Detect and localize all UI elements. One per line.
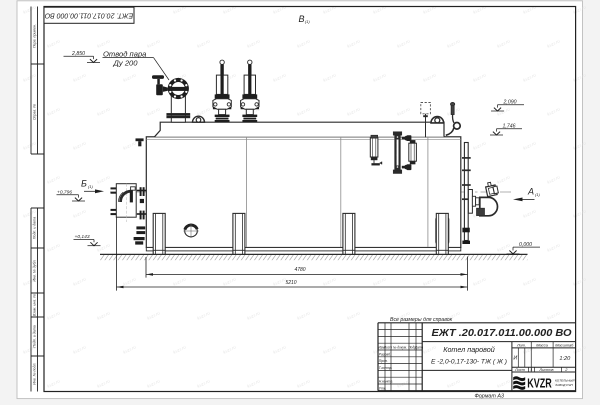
svg-text:(1): (1) [535,192,541,197]
svg-text:KVZR: KVZR [527,375,552,390]
svg-text:Ду 200: Ду 200 [113,58,139,67]
svg-text:5210: 5210 [285,280,296,286]
svg-text:Котел паровой: Котел паровой [443,345,495,354]
svg-text:И: И [513,356,517,362]
svg-text:В: В [299,14,305,24]
svg-text:Отвод пара: Отвод пара [103,49,146,58]
svg-text:Справ. №: Справ. № [33,104,37,120]
svg-text:Инв. № дубл.: Инв. № дубл. [33,259,37,281]
svg-text:Б: Б [81,179,87,189]
svg-text:Формат А3: Формат А3 [475,394,505,400]
svg-text:Инв. № подл.: Инв. № подл. [33,363,37,385]
svg-text:Лист: Лист [514,367,526,372]
svg-text:Лист: Лист [383,346,393,350]
svg-text:1:20: 1:20 [559,356,571,362]
svg-text:№ докум.: № докум. [393,346,407,350]
svg-text:Н.контр.: Н.контр. [379,380,393,384]
svg-text:Е -2,0-0,17-130- ТЖ ( Ж ): Е -2,0-0,17-130- ТЖ ( Ж ) [431,359,507,366]
svg-text:Лит.: Лит. [516,342,526,347]
svg-text:Пров.: Пров. [379,359,388,363]
svg-text:(1): (1) [88,184,94,189]
svg-text:ЗАВОД РЭП: ЗАВОД РЭП [555,383,574,387]
svg-text:А: А [527,187,534,197]
svg-text:КОТЕЛЬНЫЙ: КОТЕЛЬНЫЙ [555,378,575,382]
svg-text:ЕЖТ. 20.017.011.00.000 ВО: ЕЖТ. 20.017.011.00.000 ВО [44,11,133,18]
svg-text:ЕЖТ .20.017.011.00.000 ВО: ЕЖТ .20.017.011.00.000 ВО [432,328,572,339]
svg-text:Масштаб: Масштаб [555,342,574,347]
svg-text:Т.контр.: Т.контр. [379,366,393,370]
svg-text:4780: 4780 [294,267,305,273]
svg-text:Дата: Дата [414,346,424,350]
svg-text:Взам. инв. №: Взам. инв. № [33,294,37,316]
svg-text:Разраб.: Разраб. [379,352,391,356]
svg-text:Перв. примен.: Перв. примен. [33,24,37,48]
svg-text:Листов: Листов [538,367,553,372]
svg-text:Подп. и дата: Подп. и дата [33,325,37,348]
svg-text:Подп. и дата: Подп. и дата [33,217,37,240]
svg-text:Все размеры для справок: Все размеры для справок [390,317,453,323]
svg-text:Утв.: Утв. [379,386,387,390]
svg-text:Масса: Масса [536,342,548,347]
svg-text:1: 1 [530,367,532,372]
svg-text:(1): (1) [305,19,311,24]
